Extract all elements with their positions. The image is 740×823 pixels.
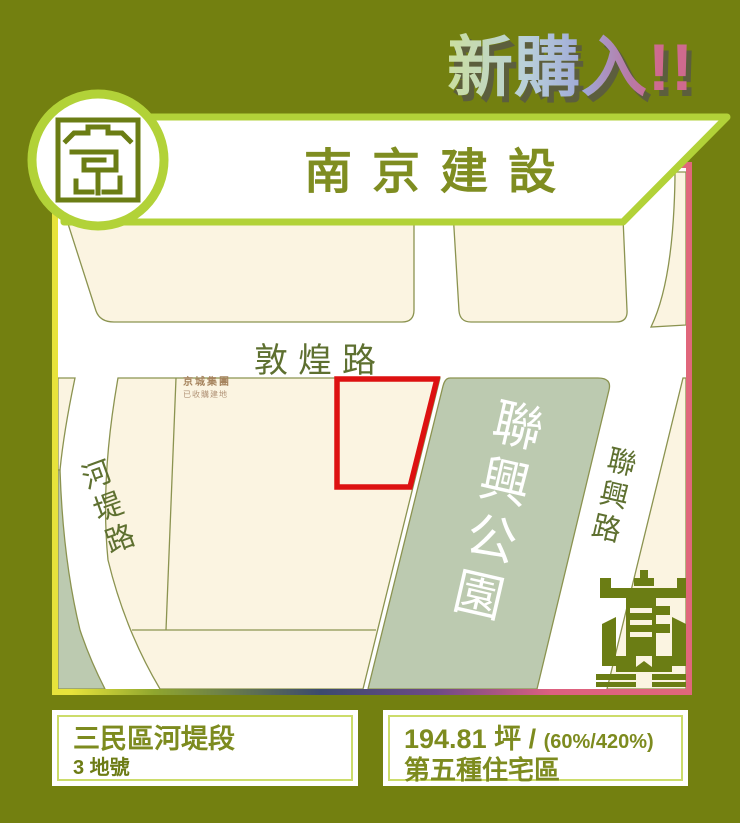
title-banner: 新購入!! 新購入!! bbox=[340, 14, 700, 106]
title-text: 新購入!! bbox=[447, 14, 694, 110]
company-name: 南京建設 bbox=[304, 146, 576, 199]
poster-page: 新購入!! 新購入!! bbox=[0, 0, 740, 823]
banner-overlay: 南京建設 bbox=[0, 0, 740, 823]
